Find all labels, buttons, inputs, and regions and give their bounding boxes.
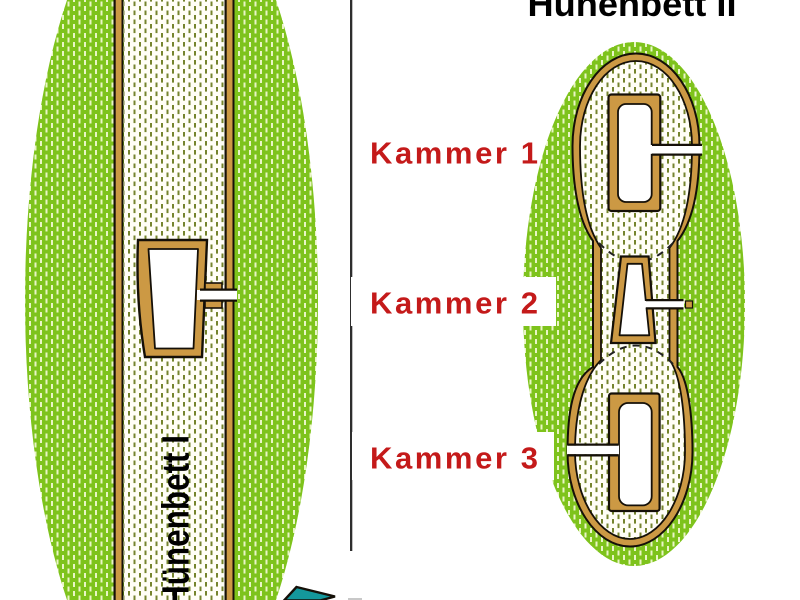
svg-text:Hünenbett I: Hünenbett I (156, 435, 198, 600)
svg-text:Hünenbett II: Hünenbett II (528, 0, 737, 24)
svg-text:Kammer 1: Kammer 1 (370, 136, 538, 171)
svg-text:Kammer 2: Kammer 2 (370, 286, 538, 321)
svg-text:Kammer 3: Kammer 3 (370, 441, 538, 476)
